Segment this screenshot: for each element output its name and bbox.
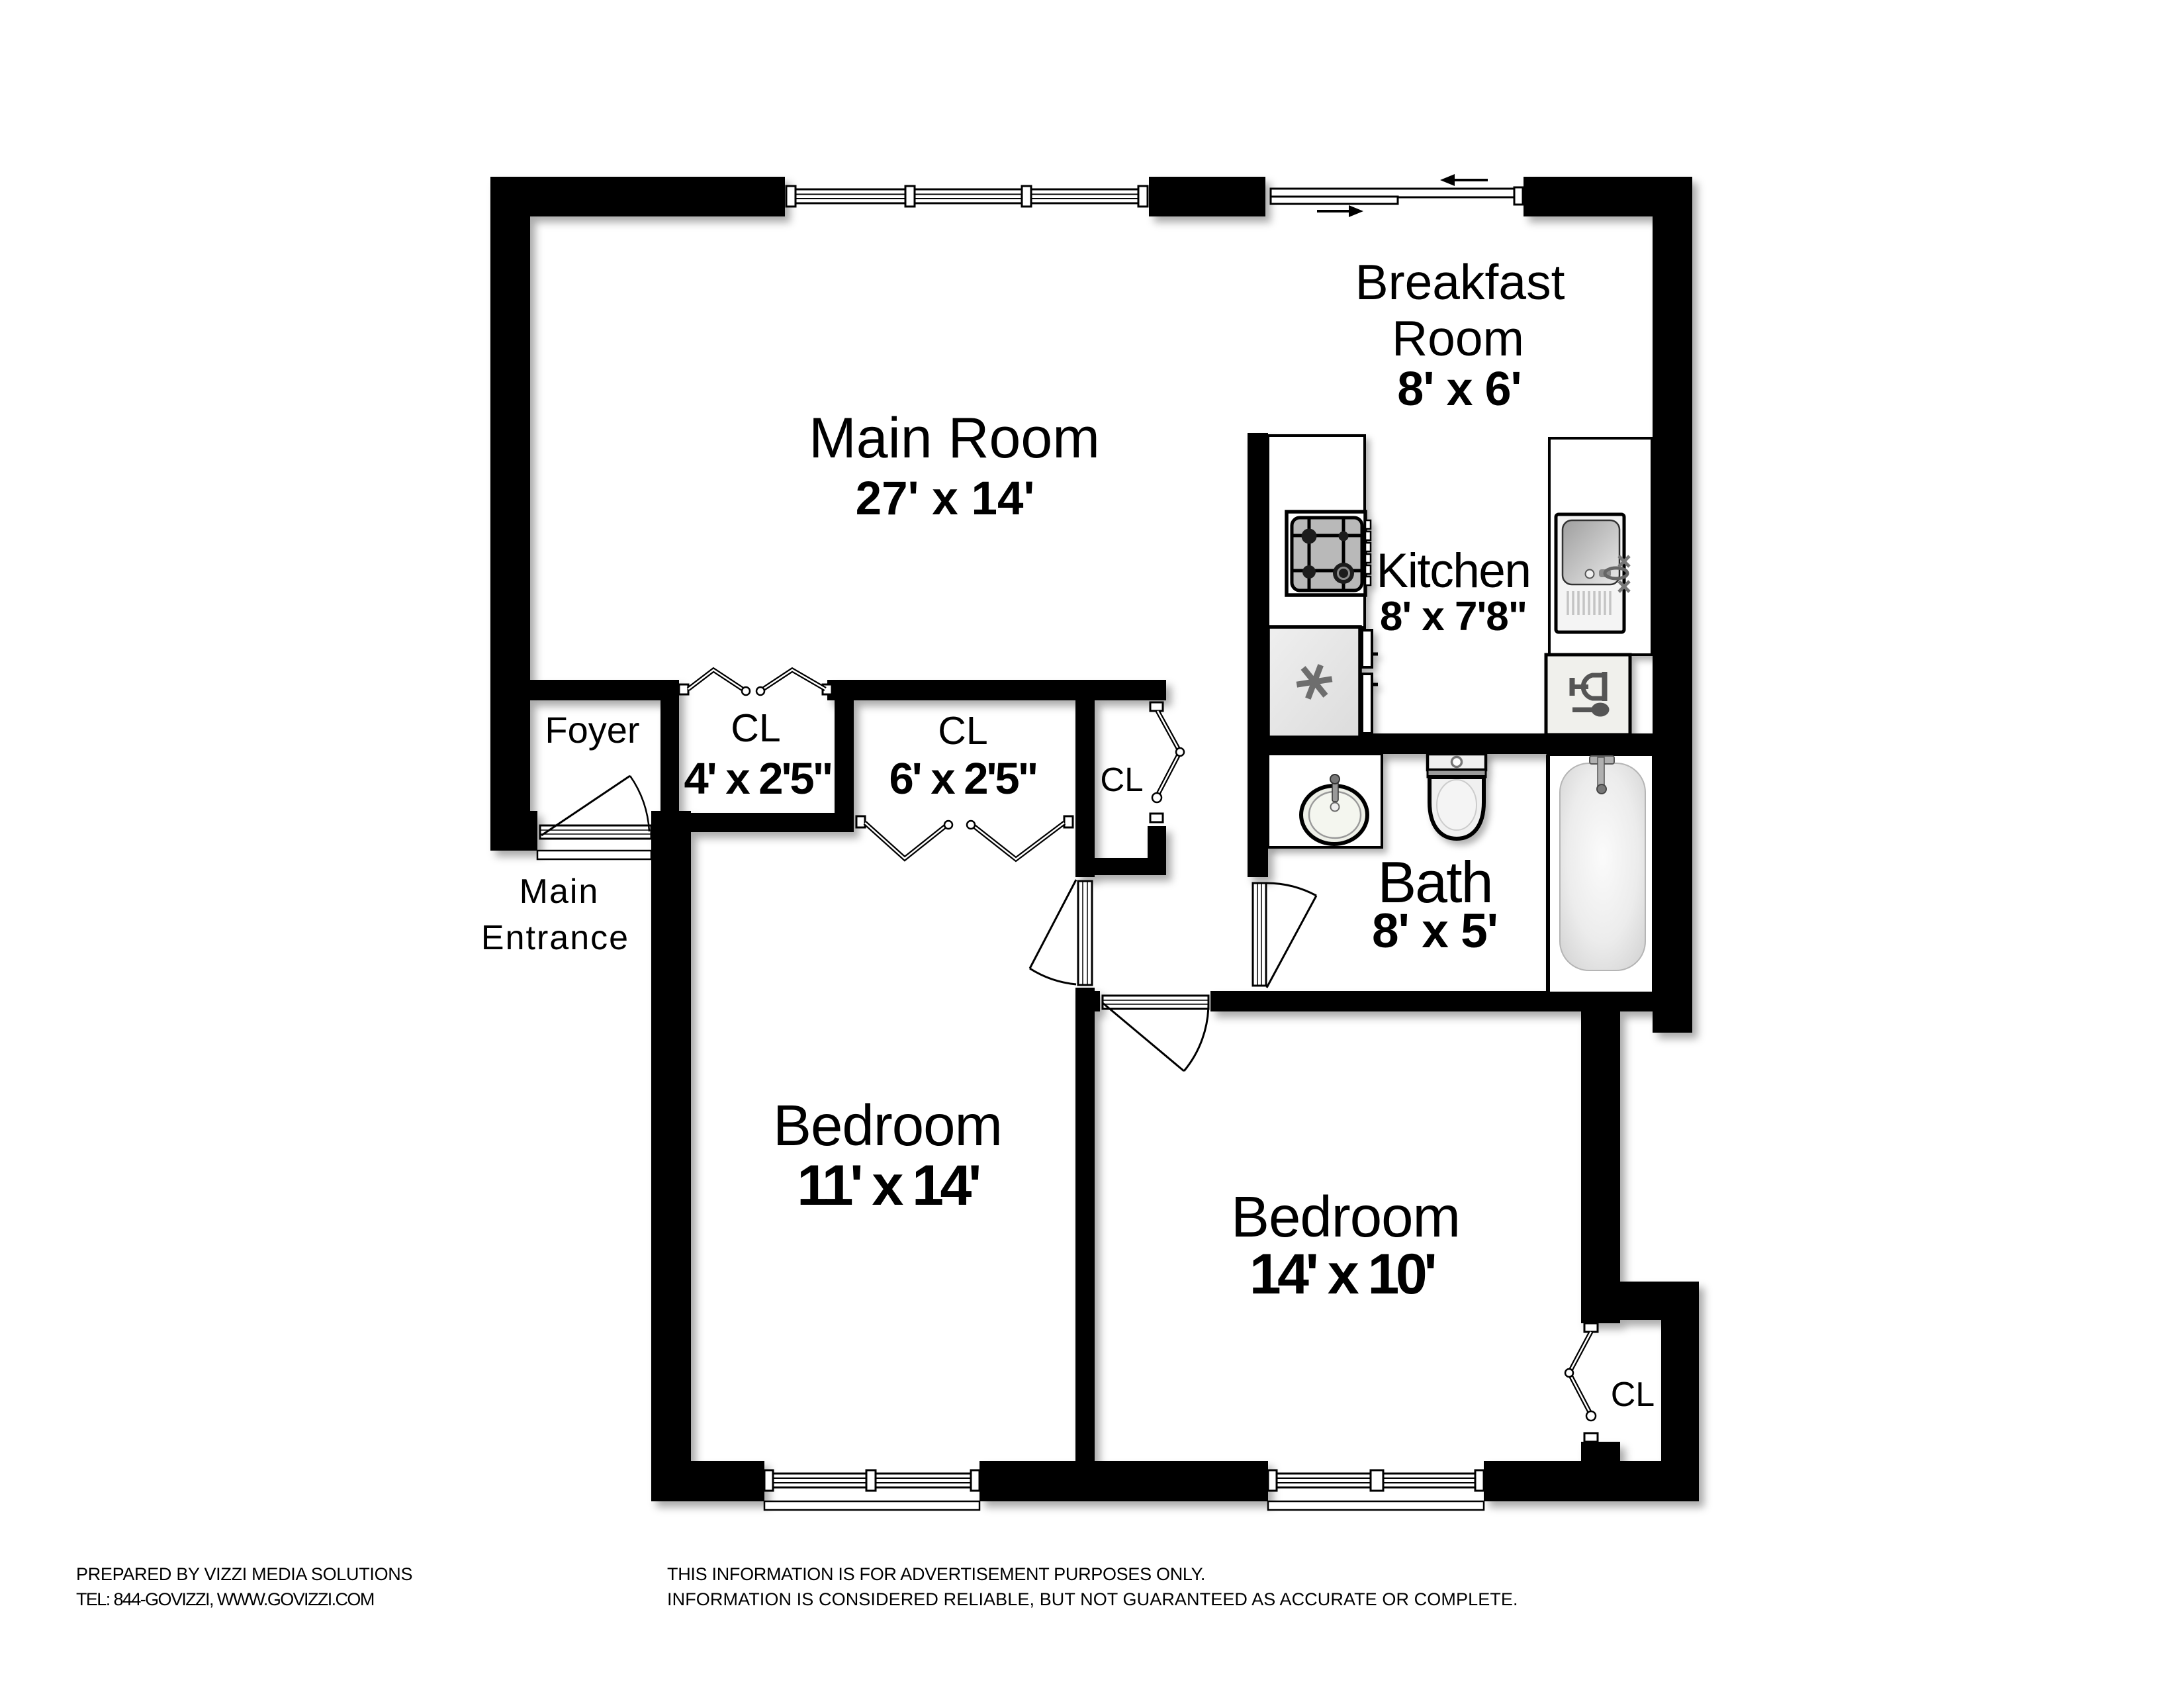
svg-text:Foyer: Foyer <box>545 709 639 751</box>
svg-text:11' x 14': 11' x 14' <box>797 1154 979 1217</box>
svg-text:Main: Main <box>520 872 600 911</box>
svg-text:Entrance: Entrance <box>481 919 629 957</box>
svg-text:TEL: 844-GOVIZZI, WWW.GOVIZZI.: TEL: 844-GOVIZZI, WWW.GOVIZZI.COM <box>76 1589 374 1609</box>
svg-text:6' x 2'5": 6' x 2'5" <box>889 754 1037 804</box>
svg-text:PREPARED BY VIZZI MEDIA SOLUTI: PREPARED BY VIZZI MEDIA SOLUTIONS <box>76 1564 412 1584</box>
svg-text:4' x 2'5": 4' x 2'5" <box>684 754 832 804</box>
svg-text:27' x 14': 27' x 14' <box>856 473 1035 525</box>
svg-text:Room: Room <box>1392 310 1524 366</box>
svg-text:Bedroom: Bedroom <box>773 1094 1002 1158</box>
svg-text:Bedroom: Bedroom <box>1231 1185 1460 1249</box>
svg-text:8' x 6': 8' x 6' <box>1397 363 1521 416</box>
svg-text:THIS INFORMATION IS FOR ADVERT: THIS INFORMATION IS FOR ADVERTISEMENT PU… <box>667 1564 1205 1584</box>
svg-text:CL: CL <box>938 709 987 753</box>
svg-text:CL: CL <box>1611 1376 1655 1414</box>
svg-text:8' x 5': 8' x 5' <box>1372 904 1498 958</box>
svg-text:CL: CL <box>731 706 780 750</box>
svg-text:Kitchen: Kitchen <box>1377 544 1531 598</box>
svg-text:CL: CL <box>1100 761 1143 798</box>
svg-text:INFORMATION IS CONSIDERED RELI: INFORMATION IS CONSIDERED RELIABLE, BUT … <box>667 1589 1518 1609</box>
svg-text:8' x 7'8": 8' x 7'8" <box>1380 594 1527 639</box>
svg-text:14' x 10': 14' x 10' <box>1250 1243 1434 1306</box>
svg-text:Breakfast: Breakfast <box>1355 254 1565 310</box>
svg-text:Main Room: Main Room <box>809 406 1100 470</box>
